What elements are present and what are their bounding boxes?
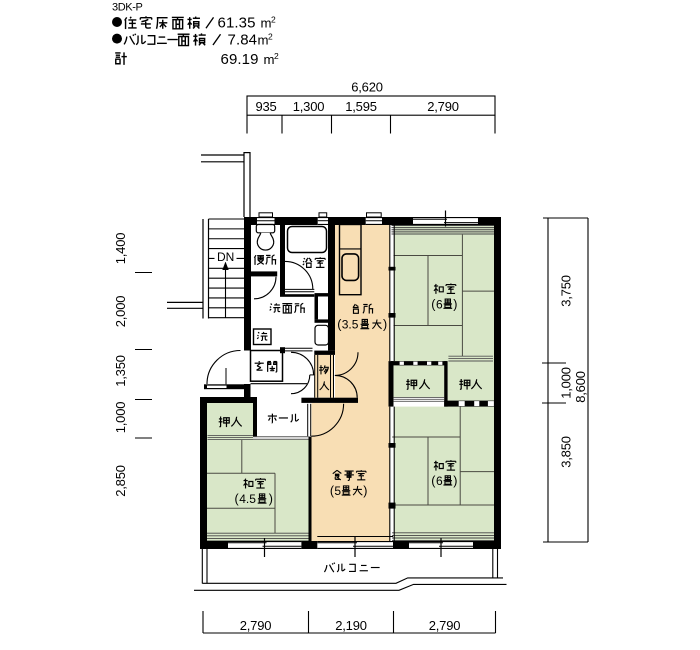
svg-text:3,750: 3,750 (559, 275, 574, 307)
svg-text:2,000: 2,000 (113, 296, 128, 328)
svg-text:6: 6 (436, 474, 443, 488)
svg-text:6,620: 6,620 (351, 80, 383, 95)
svg-text:1,400: 1,400 (113, 233, 128, 265)
svg-text:2,790: 2,790 (240, 618, 272, 633)
svg-text:3.5: 3.5 (342, 318, 359, 332)
svg-text:2: 2 (268, 31, 273, 41)
svg-text:DN: DN (217, 250, 234, 264)
svg-text:3DK-P: 3DK-P (112, 2, 142, 14)
svg-text:): ) (453, 297, 457, 311)
svg-text:2,850: 2,850 (113, 465, 128, 497)
svg-text:935: 935 (255, 99, 276, 114)
svg-text:1,000: 1,000 (559, 367, 574, 399)
svg-text:1,595: 1,595 (345, 99, 377, 114)
svg-text:5: 5 (334, 484, 341, 498)
svg-text:2,790: 2,790 (427, 99, 459, 114)
svg-text:): ) (383, 318, 387, 332)
svg-text:2: 2 (271, 15, 276, 25)
svg-text:1,300: 1,300 (293, 99, 325, 114)
svg-text:2,790: 2,790 (429, 618, 461, 633)
svg-text:4.5: 4.5 (239, 492, 256, 506)
svg-text:8,600: 8,600 (573, 371, 588, 403)
svg-text:): ) (269, 492, 273, 506)
svg-text:6: 6 (436, 297, 443, 311)
svg-text:): ) (453, 474, 457, 488)
svg-text:7.84: 7.84 (228, 31, 258, 48)
svg-text:1,350: 1,350 (113, 355, 128, 387)
svg-text:2: 2 (274, 51, 279, 61)
svg-text:1,000: 1,000 (113, 402, 128, 434)
svg-text:61.35: 61.35 (218, 15, 256, 32)
svg-text:): ) (363, 484, 367, 498)
svg-text:m: m (261, 16, 272, 31)
svg-text:3,850: 3,850 (559, 436, 574, 468)
svg-text:m: m (264, 52, 275, 67)
svg-text:69.19: 69.19 (221, 51, 259, 68)
svg-text:m: m (258, 32, 269, 47)
svg-text:2,190: 2,190 (335, 618, 367, 633)
